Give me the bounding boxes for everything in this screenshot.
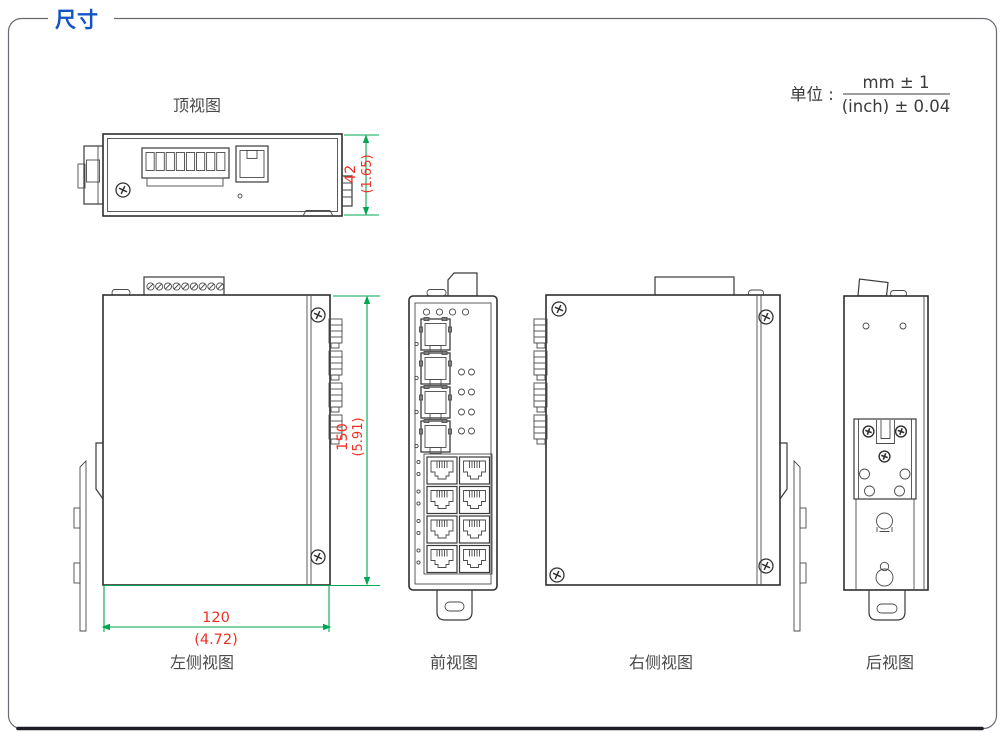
din-mount-tab [437,590,472,620]
terminal-block [655,277,734,296]
unit-annotation: 单位 : mm ± 1 (inch) ± 0.04 [790,73,950,116]
device-body [546,295,780,585]
din-rail-clip [78,146,103,204]
din-rail-clip [74,443,103,631]
right-side-view: 右侧视图 [534,277,806,672]
rear-view-label: 后视图 [866,653,914,672]
left-side-view: 150 (5.91) 120 (4.72) 左侧视图 [74,277,380,672]
terminal-block [448,273,477,296]
top-button [427,290,446,297]
unit-label: 单位 : [790,85,834,104]
left-view-label: 左侧视图 [170,653,234,672]
sfp-cage-edge [329,351,342,380]
sfp-cage-edge [329,319,342,348]
unit-numerator: mm ± 1 [863,73,930,92]
width-dimension: 120 (4.72) [102,585,332,648]
device-body [103,134,342,216]
sfp-cage-edge [329,383,342,412]
height-inch: (5.91) [351,417,366,456]
sfp-cage-edge [534,351,547,380]
rear-view: 后视图 [844,279,928,672]
depth-mm: 42 [343,165,359,183]
width-inch: (4.72) [194,632,238,648]
right-view-label: 右侧视图 [629,653,693,672]
front-view-label: 前视图 [430,653,478,672]
din-mount-tab [869,590,905,620]
terminal-block [858,279,888,296]
din-rail-clip [780,443,806,631]
dimension-drawing: 尺寸 单位 : mm ± 1 (inch) ± 0.04 顶视图 42 ( [0,0,1000,733]
top-view-label: 顶视图 [173,96,221,115]
front-view: 前视图 [409,273,497,672]
unit-denominator: (inch) ± 0.04 [842,97,951,116]
terminal-block [144,277,224,296]
page-title: 尺寸 [55,8,99,32]
depth-inch: (1.65) [360,154,375,193]
top-view: 顶视图 42 (1.65) [78,96,379,216]
height-mm: 150 [335,423,351,451]
sfp-cage-edge [534,383,547,412]
sfp-cage-edge [534,415,547,444]
device-body [103,295,330,585]
depth-dimension: 42 (1.65) [343,135,379,216]
dimension-drawing-page: 尺寸 单位 : mm ± 1 (inch) ± 0.04 顶视图 42 ( [0,0,1000,733]
sfp-cage-edge [534,319,547,348]
width-mm: 120 [202,610,230,626]
